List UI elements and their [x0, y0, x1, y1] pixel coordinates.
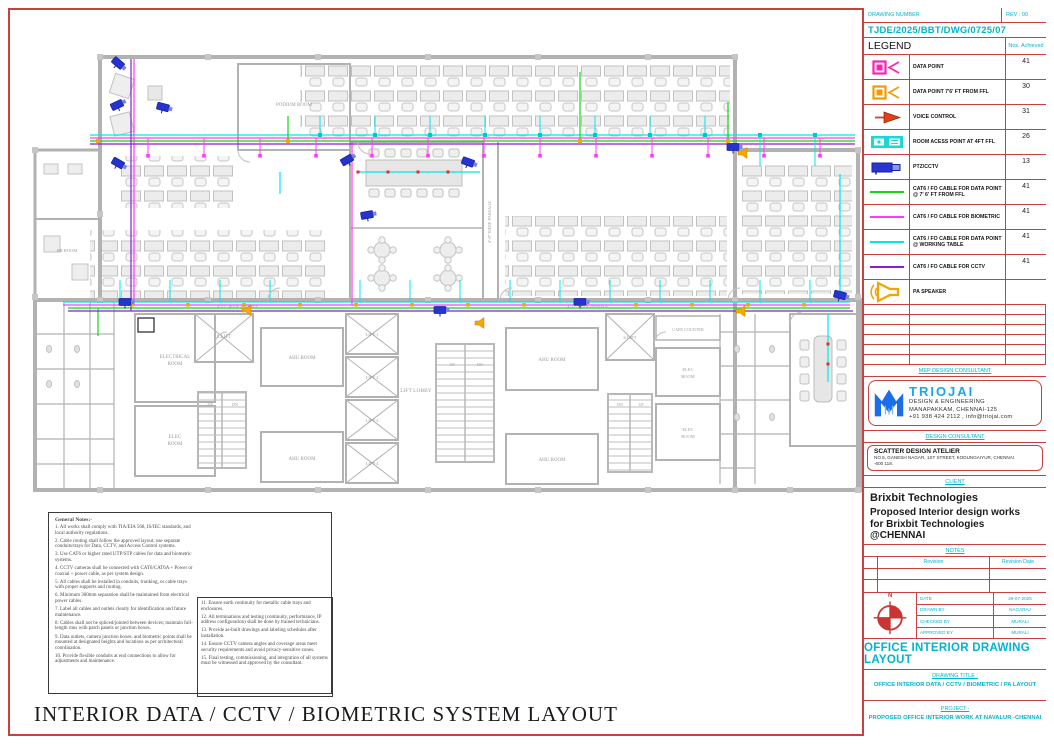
drawing-title: OFFICE INTERIOR DATA / CCTV / BIOMETRIC … [864, 682, 1046, 688]
info-label: CHECKED BY [917, 616, 993, 627]
legend-item-label: CAT6 / FO CABLE FOR CCTV [910, 255, 1006, 279]
legend-row: VOICE CONTROL 31 [864, 105, 1046, 130]
info-row: DRAWN BYNAGARAJ [917, 605, 1046, 617]
room-label: ROOM [167, 442, 183, 447]
room-label: AHU ROOM [538, 358, 566, 363]
legend-empty-row [864, 315, 1046, 325]
cctv-camera-icon [110, 98, 128, 114]
legend-item-label: PTZ/CCTV [910, 155, 1006, 179]
cctv-camera-icon [460, 157, 478, 172]
legend-empty-row [864, 325, 1046, 335]
cctv-camera-icon [360, 210, 377, 223]
cable-line-swatch [870, 241, 904, 243]
legend-icon-cell [864, 180, 910, 204]
legend-row: CAT6 / FO CABLE FOR CCTV 41 [864, 255, 1046, 280]
legend-item-count: 41 [1006, 255, 1046, 279]
title-block: DRAWING NUMBER REV : 00 TJDE/2025/BBT/DW… [862, 8, 1046, 736]
legend-item-label: DATA POINT [910, 55, 1006, 79]
cable-line-swatch [870, 216, 904, 218]
legend-empty-row [864, 355, 1046, 365]
floor-plan: PODIUM ROOMHR ROOMS.LIFTELECTRICALROOMEL… [28, 14, 862, 498]
cable-line-swatch [870, 191, 904, 193]
legend-title: LEGEND [864, 40, 1005, 52]
note-item: 4. CCTV cameras shall be connected with … [55, 566, 193, 577]
info-label: APPROVED BY [917, 628, 993, 639]
legend-item-label: VOICE CONTROL [910, 105, 1006, 129]
client-block: Brixbit Technologies Proposed Interior d… [864, 488, 1046, 545]
room-label: UP [207, 402, 213, 407]
info-row: DATE29-07-2025 [917, 593, 1046, 605]
legend-item-count: 26 [1006, 130, 1046, 154]
legend-row: ROOM ACESS POINT AT 4FT FFL 26 [864, 130, 1046, 155]
info-label: DATE [917, 593, 993, 604]
ptz-cctv-icon [870, 159, 904, 175]
legend-empty-row [864, 305, 1046, 315]
legend-item-count: 30 [1006, 80, 1046, 104]
cable-line-swatch [870, 266, 904, 268]
project-label: PROJECT:- [864, 706, 1046, 712]
room-label: UP [449, 362, 455, 367]
legend-item-label: PA SPEAKER [910, 280, 1006, 304]
project-block: PROJECT:- PROPOSED OFFICE INTERIOR WORK … [864, 701, 1046, 739]
info-row: APPROVED BYMURALI [917, 628, 1046, 639]
pa-speaker-icon [870, 281, 904, 303]
room-label: DN [617, 402, 623, 407]
room-label: LIFT-3 [366, 418, 380, 423]
office-layout-banner: OFFICE INTERIOR DRAWING LAYOUT [864, 639, 1046, 670]
info-value: 29-07-2025 [993, 593, 1046, 604]
legend-item-count: 41 [1006, 180, 1046, 204]
room-label: 4'-11" WIDE PASSAGE [217, 304, 259, 309]
legend-icon-cell [864, 230, 910, 254]
legend-item-label: CAT6 / FO CABLE FOR DATA POINT @ 7' 6' F… [910, 180, 1006, 204]
room-label: UP [638, 402, 644, 407]
legend-item-count: 41 [1006, 55, 1046, 79]
client-label: CLIENT [864, 476, 1046, 488]
north-label: N [888, 593, 892, 599]
legend-row: CAT6 / FO CABLE FOR BIOMETRIC 41 [864, 205, 1046, 230]
room-label: LIFT-1 [366, 332, 379, 337]
legend-item-label: ROOM ACESS POINT AT 4FT FFL [910, 130, 1006, 154]
north-compass-icon [871, 596, 909, 636]
drawing-title-label: DRAWING TITLE : [864, 673, 1046, 679]
legend-item-count: 41 [1006, 205, 1046, 229]
legend-icon-cell [864, 205, 910, 229]
room-label: AHU ROOM [538, 458, 566, 463]
info-value: MURALI [993, 616, 1046, 627]
legend-icon-cell [864, 105, 910, 129]
legend-icon-cell [864, 130, 910, 154]
cctv-camera-icon [109, 56, 127, 74]
room-label: 4'-11" WIDE PASSAGE [567, 304, 609, 309]
general-notes-left-column: 1. All works shall comply with TIA/EIA 5… [55, 525, 193, 667]
room-label: DN [232, 402, 238, 407]
note-item: 13. Provide as-built drawings and labeli… [201, 628, 329, 639]
room-label: ELECTRICAL [160, 355, 191, 360]
sheet-title: INTERIOR DATA / CCTV / BIOMETRIC SYSTEM … [34, 702, 618, 727]
scatter-name: SCATTER DESIGN ATELIER [874, 448, 1036, 455]
legend-item-label: DATA POINT 7'6' FT FROM FFL [910, 80, 1006, 104]
note-item: 11. Ensure earth continuity for metallic… [201, 601, 329, 612]
revision-table: Revision Revision Date [864, 557, 1046, 593]
legend-row: PA SPEAKER [864, 280, 1046, 305]
note-item: 2. Cable routing shall follow the approv… [55, 539, 193, 550]
note-item: 10. Provide flexible conduits at end con… [55, 654, 193, 665]
data-point-ffl-icon [872, 85, 902, 100]
mep-consultant-block: TRIOJAI DESIGN & ENGINEERING MANAPAKKAM,… [864, 377, 1046, 431]
client-description: Proposed Interior design works for Brixb… [870, 507, 1030, 542]
room-label: ELEC [682, 367, 693, 372]
legend-row: DATA POINT 7'6' FT FROM FFL 30 [864, 80, 1046, 105]
design-consultant-label: DESIGN CONSULTANT [864, 431, 1046, 443]
general-notes-right-column: 11. Ensure earth continuity for metallic… [197, 597, 333, 697]
data-point-icon [872, 60, 902, 75]
note-item: 8. Cables shall not be spliced/jointed b… [55, 621, 193, 632]
room-label: ELEC [682, 427, 693, 432]
note-item: 1. All works shall comply with TIA/EIA 5… [55, 525, 193, 536]
note-item: 6. Minimum 300mm separation shall be mai… [55, 593, 193, 604]
note-item: 5. All cables shall be installed in cond… [55, 580, 193, 591]
drawing-number: TJDE/2025/BBT/DWG/0725/07 [868, 25, 1006, 36]
voice-control-icon [872, 110, 902, 125]
drawing-info-block: N DATE29-07-2025DRAWN BYNAGARAJCHECKED B… [864, 593, 1046, 639]
legend-row: CAT6 / FO CABLE FOR DATA POINT @ 7' 6' F… [864, 180, 1046, 205]
room-label: AHU ROOM [288, 356, 316, 361]
room-label: PODIUM ROOM [276, 103, 313, 108]
revision-number: REV : 00 [1001, 8, 1042, 22]
legend-icon-cell [864, 155, 910, 179]
legend-empty-row [864, 345, 1046, 355]
general-notes: General Notes:- 1. All works shall compl… [48, 512, 332, 694]
design-consultant-block: SCATTER DESIGN ATELIER NO.5, GANESH NAGA… [864, 443, 1046, 476]
legend-table: DATA POINT 41 DATA POINT 7'6' FT FROM FF… [864, 55, 1046, 305]
legend-icon-cell [864, 55, 910, 79]
pa-speaker-icon [475, 318, 484, 329]
note-item: 15. Final testing, commissioning, and in… [201, 656, 329, 667]
room-label: LIFT-2 [366, 375, 379, 380]
legend-item-count: 31 [1006, 105, 1046, 129]
revision-date-header: Revision Date [990, 557, 1046, 568]
desk-zones [90, 62, 852, 298]
triojai-line2: MANAPAKKAM, CHENNAI-125 [909, 407, 1012, 415]
legend-item-count [1006, 280, 1046, 304]
project-title: PROPOSED OFFICE INTERIOR WORK AT NAVALUR… [864, 715, 1046, 721]
triojai-line3: +91 938 424 2112 , info@triojai.com [909, 414, 1012, 422]
room-access-point-icon [870, 134, 904, 150]
room-label: LIFT-4 [366, 461, 380, 466]
stairs [198, 344, 652, 472]
triojai-logo [873, 386, 905, 420]
nos-achieved-label: Nos. Achieved [1005, 38, 1046, 54]
room-label: S.LIFT [623, 335, 636, 340]
room-label: LIFT LOBBY [400, 388, 432, 394]
note-item: 12. All terminations and testing (contin… [201, 615, 329, 626]
floor-plan-svg: PODIUM ROOMHR ROOMS.LIFTELECTRICALROOMEL… [28, 14, 862, 498]
general-notes-title: General Notes:- [55, 517, 92, 523]
room-label: AHU ROOM [288, 457, 316, 462]
legend-icon-cell [864, 80, 910, 104]
note-item: 14. Ensure CCTV camera angles and covera… [201, 642, 329, 653]
note-item: 3. Use CAT6 or higher rated UTP/STP cabl… [55, 552, 193, 563]
legend-row: DATA POINT 41 [864, 55, 1046, 80]
legend-empty-row [864, 335, 1046, 345]
notes-label: NOTES [864, 545, 1046, 557]
triojai-name: TRIOJAI [909, 384, 1012, 399]
triojai-line1: DESIGN & ENGINEERING [909, 399, 1012, 407]
info-value: MURALI [993, 628, 1046, 639]
pa-speaker-icon [736, 306, 745, 317]
legend-item-label: CAT6 / FO CABLE FOR BIOMETRIC [910, 205, 1006, 229]
room-label: DN [477, 362, 483, 367]
cctv-camera-icon [119, 299, 135, 309]
drawing-sheet: PODIUM ROOMHR ROOMS.LIFTELECTRICALROOMEL… [0, 0, 1054, 744]
revision-header: Revision [878, 557, 990, 568]
room-label: HR ROOM [57, 248, 78, 253]
legend-item-label: CAT6 / FO CABLE FOR DATA POINT @ WORKING… [910, 230, 1006, 254]
scatter-address: NO.5, GANESH NAGAR, 1ST STREET, KODUNGAI… [874, 455, 1024, 466]
note-item: 9. Data outlets, camera junction boxes, … [55, 635, 193, 652]
legend-icon-cell [864, 255, 910, 279]
info-row: CHECKED BYMURALI [917, 616, 1046, 628]
legend-item-count: 41 [1006, 230, 1046, 254]
legend-row: CAT6 / FO CABLE FOR DATA POINT @ WORKING… [864, 230, 1046, 255]
legend-empty-rows [864, 305, 1046, 365]
legend-row: PTZ/CCTV 13 [864, 155, 1046, 180]
client-name: Brixbit Technologies [870, 492, 1040, 504]
room-label: ELEC [169, 435, 182, 440]
drawing-number-label: DRAWING NUMBER [868, 12, 920, 18]
info-value: NAGARAJ [993, 605, 1046, 616]
drawing-title-block: DRAWING TITLE : OFFICE INTERIOR DATA / C… [864, 670, 1046, 701]
room-label: ROOM [681, 374, 695, 379]
north-arrow: N [864, 593, 917, 638]
mep-consultant-label: MEP DESIGN CONSULTANT [864, 365, 1046, 377]
room-label: ROOM [681, 434, 695, 439]
room-label: 4'-0" WIDE PASSAGE [487, 201, 492, 243]
room-label: ROOM [167, 362, 183, 367]
room-label: CAFE COUNTER [672, 327, 704, 332]
note-item: 7. Label all cables and outlets clearly … [55, 607, 193, 618]
legend-item-count: 13 [1006, 155, 1046, 179]
cctv-camera-icon [434, 307, 450, 317]
cctv-camera-icon [156, 102, 174, 116]
info-label: DRAWN BY [917, 605, 993, 616]
legend-icon-cell [864, 280, 910, 304]
